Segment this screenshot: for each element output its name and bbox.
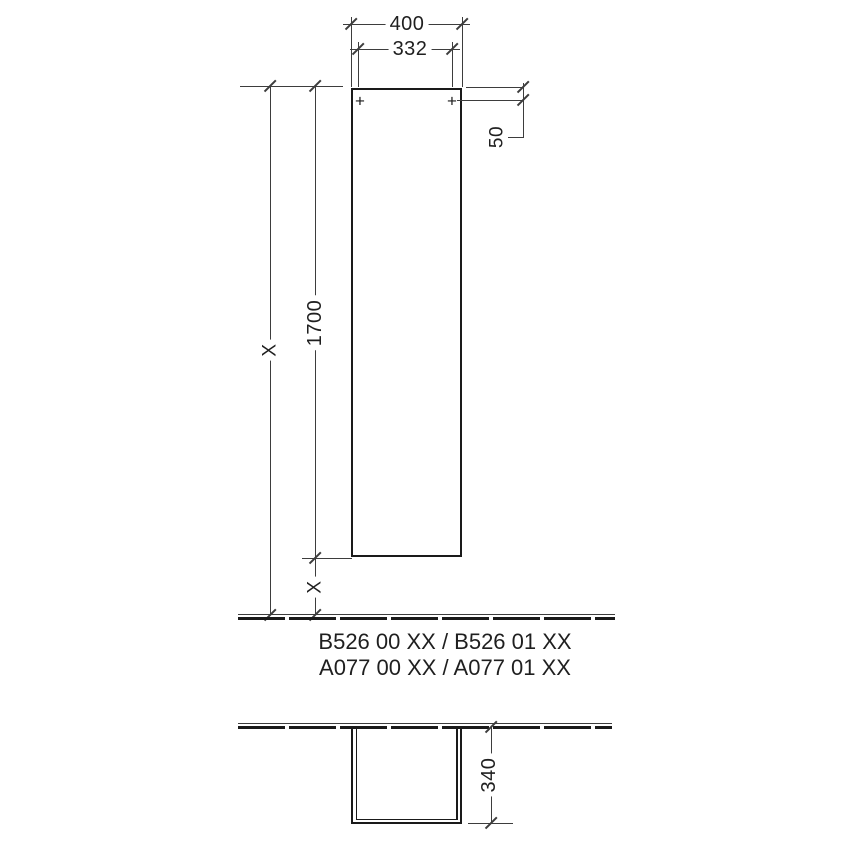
product-code-line-2: A077 00 XX / A077 01 XX: [319, 655, 571, 681]
dim-label-hole-top-offset: 50: [487, 122, 508, 152]
mounting-hole-cross-right-icon: +: [447, 93, 457, 110]
extension-line-400-right: [462, 17, 463, 87]
dim-label-width: 400: [386, 13, 429, 35]
dim-label-hole-spacing: 332: [389, 38, 432, 60]
extension-line-cabinet-bottom: [302, 558, 352, 559]
extension-line-50-bottom: [457, 100, 523, 101]
extension-line-top-left: [240, 86, 343, 87]
section-wall-right-inner: [456, 729, 458, 820]
product-code-line-1: B526 00 XX / B526 01 XX: [318, 629, 571, 655]
extension-line-340-bottom: [468, 823, 513, 824]
floor-line: [238, 614, 615, 620]
leader-line-50: [508, 137, 524, 138]
section-front-inner: [356, 819, 458, 821]
section-wall-right-outer: [460, 729, 462, 824]
dim-label-floor-clearance: X: [305, 576, 326, 597]
wall-line: [238, 723, 612, 729]
dim-label-cabinet-height: 1700: [304, 296, 326, 351]
dim-label-total-height: X: [260, 339, 281, 360]
technical-drawing-canvas: + + 400 332 50 X 1700 X B526 00 XX / B52…: [0, 0, 843, 843]
section-wall-left-inner: [356, 729, 358, 820]
dim-label-depth: 340: [478, 754, 500, 797]
mounting-hole-cross-left-icon: +: [355, 93, 365, 110]
section-front-outer: [351, 822, 462, 824]
cabinet-front-outline: [351, 88, 462, 557]
extension-line-50-top: [466, 87, 523, 88]
section-wall-left-outer: [351, 729, 353, 824]
dimension-line-50: [523, 83, 524, 137]
